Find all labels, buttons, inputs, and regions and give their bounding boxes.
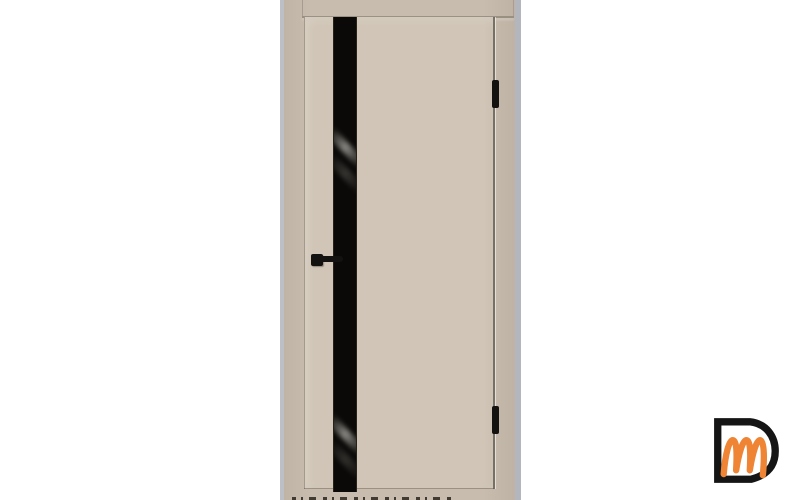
product-photo: Dm xyxy=(0,0,800,500)
frame-joint-right xyxy=(513,0,514,16)
glass-insert xyxy=(333,17,357,492)
wall-edge-right xyxy=(515,0,521,500)
hinge-top xyxy=(492,80,499,108)
hinge-bottom xyxy=(492,406,499,434)
page-background: { "scene": { "type": "product photo", "s… xyxy=(0,0,800,500)
brand-logo: Dm xyxy=(708,414,784,490)
brand-logo-svg: Dm xyxy=(708,414,784,490)
door-handle-lever xyxy=(320,256,343,262)
frame-joint-left xyxy=(302,0,303,16)
logo-letter-m xyxy=(721,438,765,478)
